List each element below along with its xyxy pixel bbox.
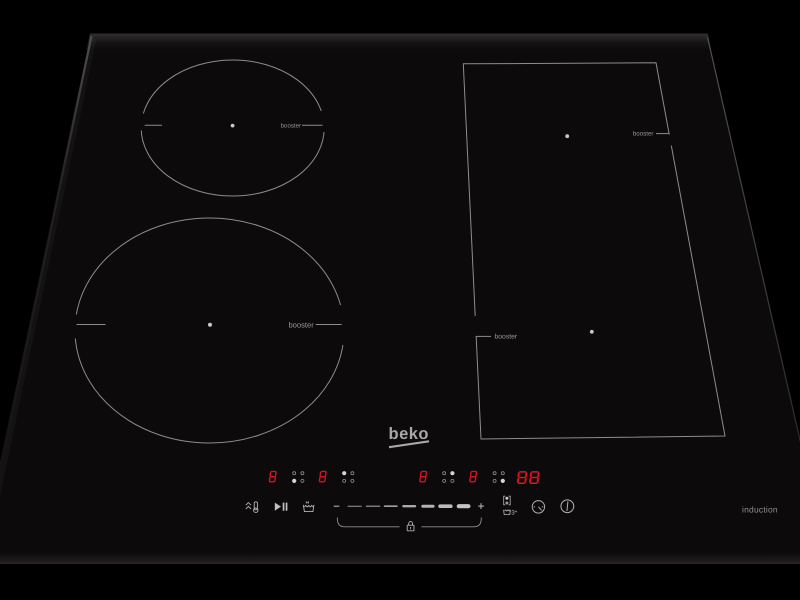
svg-text:3*: 3* (511, 510, 517, 517)
svg-text:induction: induction (742, 504, 778, 514)
svg-text:booster: booster (288, 320, 314, 329)
svg-text:booster: booster (495, 334, 518, 341)
svg-text:booster: booster (633, 131, 654, 138)
svg-text:booster: booster (281, 122, 301, 129)
svg-text:beko: beko (389, 425, 430, 443)
